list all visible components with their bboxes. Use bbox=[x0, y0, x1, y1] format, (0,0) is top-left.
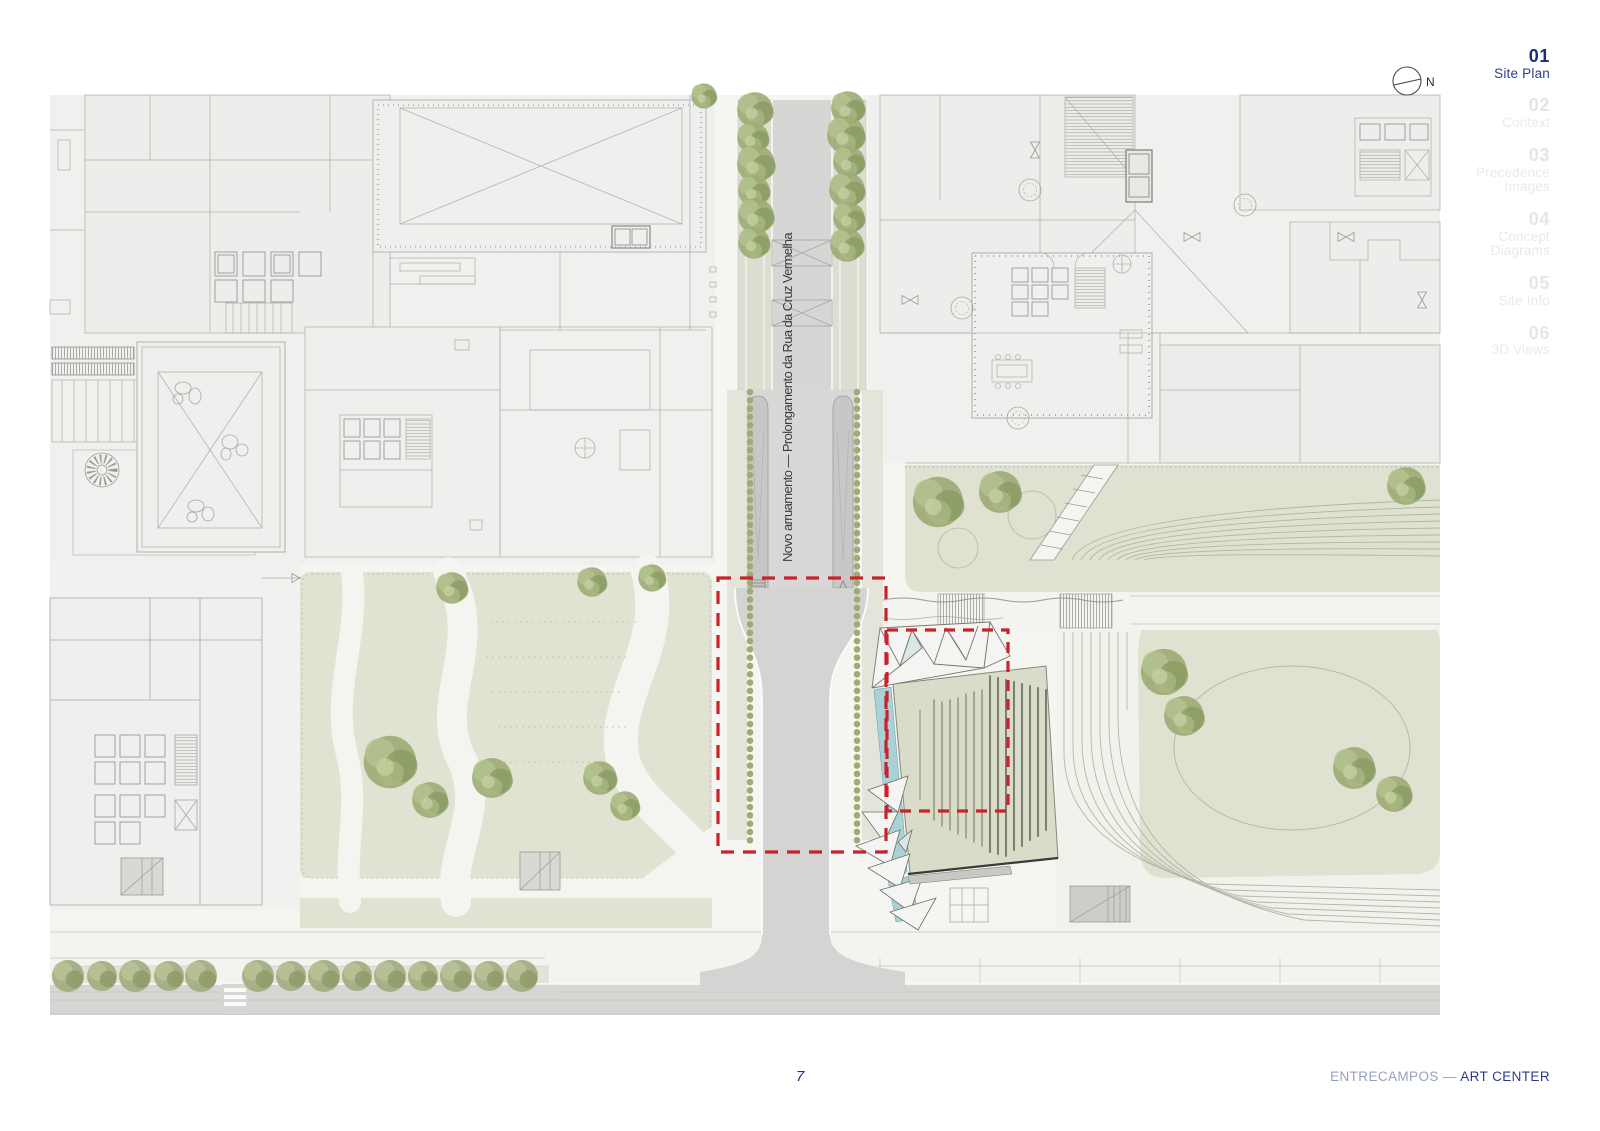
nav-item-site-info[interactable]: 05 Site Info bbox=[1400, 274, 1550, 308]
street-tree-row bbox=[52, 960, 538, 992]
nav-item-context[interactable]: 02 Context bbox=[1400, 96, 1550, 130]
site-plan-drawing: Novo arruamento — Prolongamento da Rua d… bbox=[0, 0, 1600, 1131]
project-title: ENTRECAMPOS — ART CENTER bbox=[1330, 1069, 1550, 1084]
section-nav: 01 Site Plan 02 Context 03 PrecedenceIma… bbox=[1400, 47, 1550, 373]
nav-item-concept-diagrams[interactable]: 04 ConceptDiagrams bbox=[1400, 210, 1550, 259]
nav-item-precedence-images[interactable]: 03 PrecedenceImages bbox=[1400, 146, 1550, 195]
nav-item-site-plan[interactable]: 01 Site Plan bbox=[1400, 47, 1550, 81]
portfolio-slide: Novo arruamento — Prolongamento da Rua d… bbox=[0, 0, 1600, 1131]
section-name: ART CENTER bbox=[1460, 1069, 1550, 1084]
nav-item-3d-views[interactable]: 06 3D Views bbox=[1400, 324, 1550, 358]
park-top-right-band bbox=[905, 465, 1440, 592]
project-name: ENTRECAMPOS — bbox=[1330, 1069, 1460, 1084]
road-label: Novo arruamento — Prolongamento da Rua d… bbox=[780, 232, 795, 562]
park-right-oval-lawn bbox=[1056, 622, 1440, 930]
